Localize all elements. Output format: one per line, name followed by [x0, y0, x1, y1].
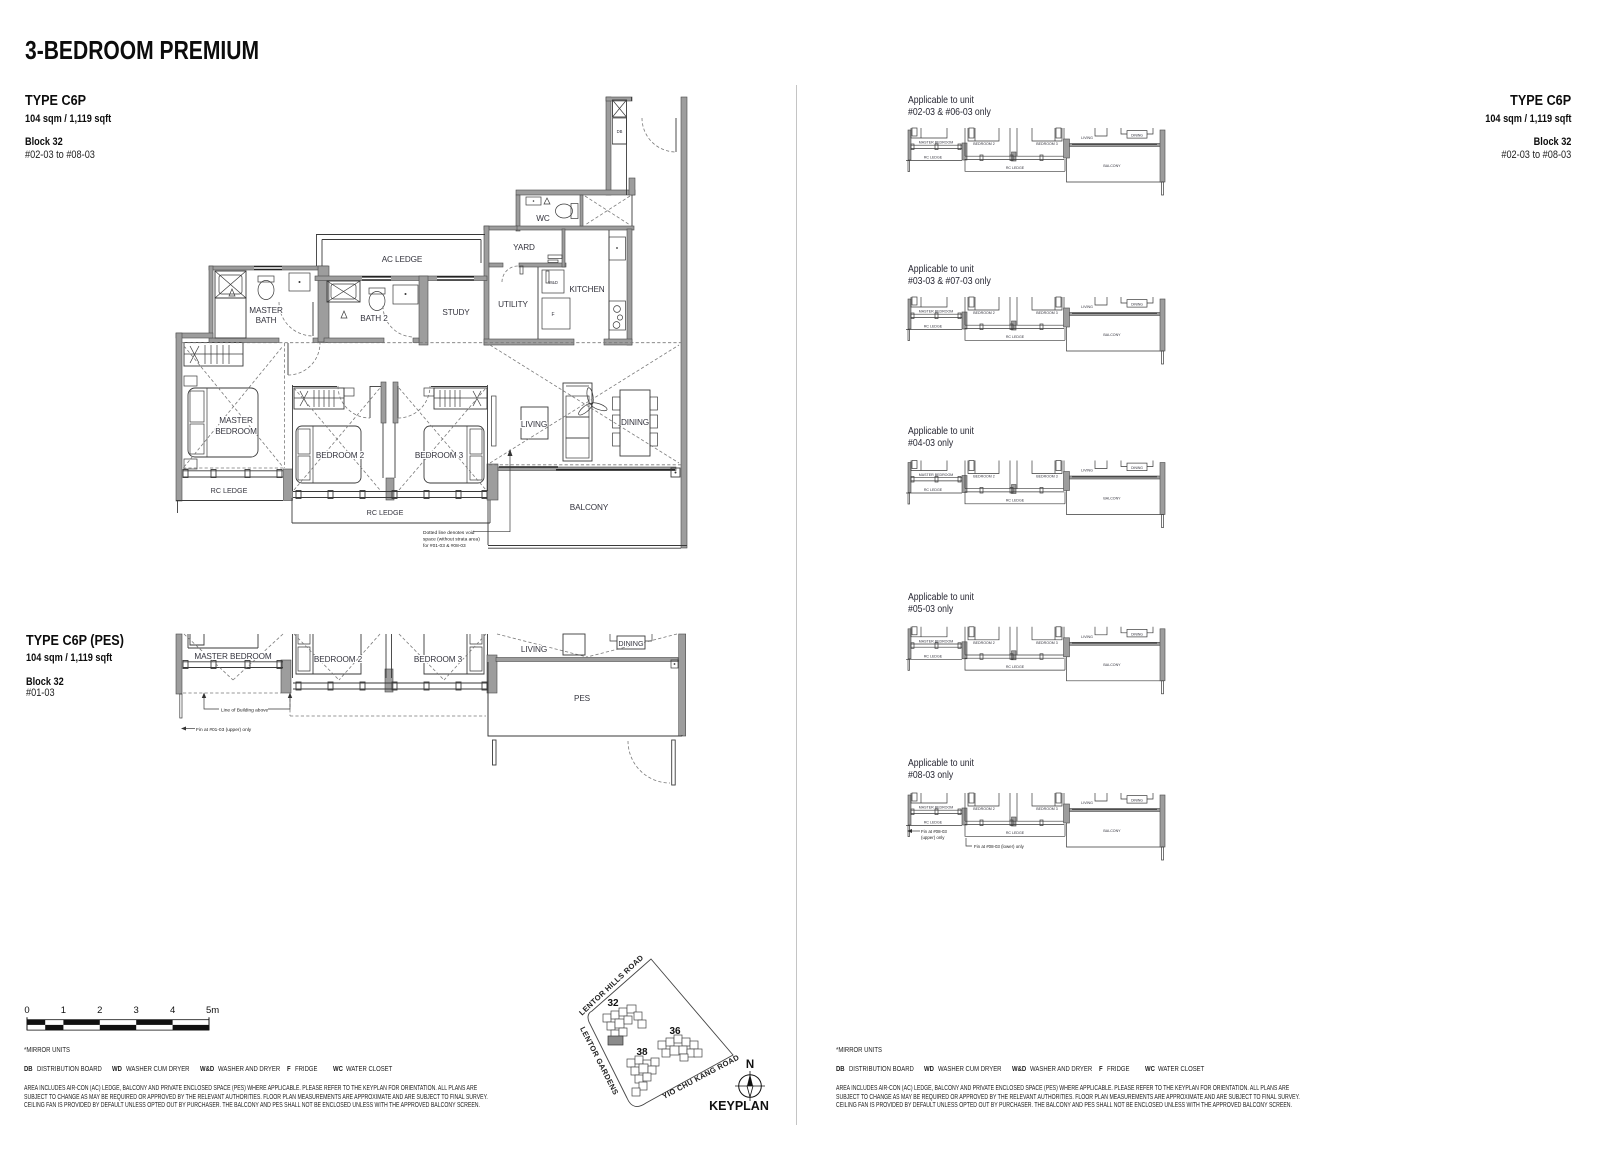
svg-text:YIO CHU KANG ROAD: YIO CHU KANG ROAD: [661, 1053, 741, 1101]
svg-text:3: 3: [134, 1005, 139, 1016]
svg-text:F: F: [551, 312, 554, 318]
svg-text:WC: WC: [536, 214, 550, 223]
svg-text:DINING: DINING: [618, 639, 644, 648]
svg-text:DB: DB: [617, 129, 623, 134]
svg-text:RC LEDGE: RC LEDGE: [367, 508, 404, 517]
svg-text:2: 2: [97, 1005, 102, 1016]
svg-text:0: 0: [24, 1005, 29, 1016]
svg-text:MASTER BEDROOM: MASTER BEDROOM: [194, 652, 272, 661]
svg-text:36: 36: [669, 1026, 681, 1037]
svg-text:YARD: YARD: [513, 243, 535, 252]
svg-text:32: 32: [607, 998, 619, 1009]
svg-text:MASTER: MASTER: [249, 306, 283, 315]
svg-text:UTILITY: UTILITY: [498, 300, 528, 309]
svg-text:N: N: [746, 1059, 754, 1071]
svg-text:LIVING: LIVING: [521, 645, 547, 654]
svg-text:BEDROOM 2: BEDROOM 2: [316, 451, 365, 460]
svg-text:BALCONY: BALCONY: [570, 503, 609, 512]
svg-text:AC LEDGE: AC LEDGE: [382, 255, 423, 264]
svg-text:STUDY: STUDY: [442, 308, 470, 317]
svg-text:Dotted line denotes void: Dotted line denotes void: [423, 530, 475, 536]
svg-text:W&D: W&D: [548, 280, 558, 285]
svg-text:5m: 5m: [206, 1005, 219, 1016]
svg-text:Fin at #08-03: Fin at #08-03: [921, 829, 947, 834]
svg-text:(upper) only: (upper) only: [921, 835, 945, 840]
svg-text:BEDROOM 3: BEDROOM 3: [415, 451, 464, 460]
svg-text:BATH 2: BATH 2: [360, 314, 388, 323]
svg-text:PES: PES: [574, 694, 591, 703]
svg-text:BATH: BATH: [256, 316, 277, 325]
svg-text:LIVING: LIVING: [521, 420, 547, 429]
svg-text:for #01-03 & #08-03: for #01-03 & #08-03: [423, 543, 466, 549]
svg-text:KEYPLAN: KEYPLAN: [709, 1099, 769, 1113]
svg-text:DINING: DINING: [621, 418, 649, 427]
svg-text:Fin at #01-03 (upper) only: Fin at #01-03 (upper) only: [196, 727, 252, 733]
svg-text:BEDROOM 2: BEDROOM 2: [314, 655, 363, 664]
svg-text:38: 38: [636, 1047, 648, 1058]
svg-text:1: 1: [61, 1005, 66, 1016]
svg-text:Line of Building above: Line of Building above: [221, 708, 269, 714]
svg-text:Fin at #08-03 (lower) only: Fin at #08-03 (lower) only: [974, 844, 1025, 849]
svg-text:BEDROOM 3: BEDROOM 3: [414, 655, 463, 664]
svg-text:BEDROOM: BEDROOM: [215, 427, 257, 436]
svg-text:4: 4: [170, 1005, 175, 1016]
svg-text:RC LEDGE: RC LEDGE: [211, 486, 248, 495]
svg-text:MASTER: MASTER: [219, 416, 253, 425]
svg-text:KITCHEN: KITCHEN: [569, 285, 604, 294]
svg-text:space (without strata area): space (without strata area): [423, 537, 480, 543]
